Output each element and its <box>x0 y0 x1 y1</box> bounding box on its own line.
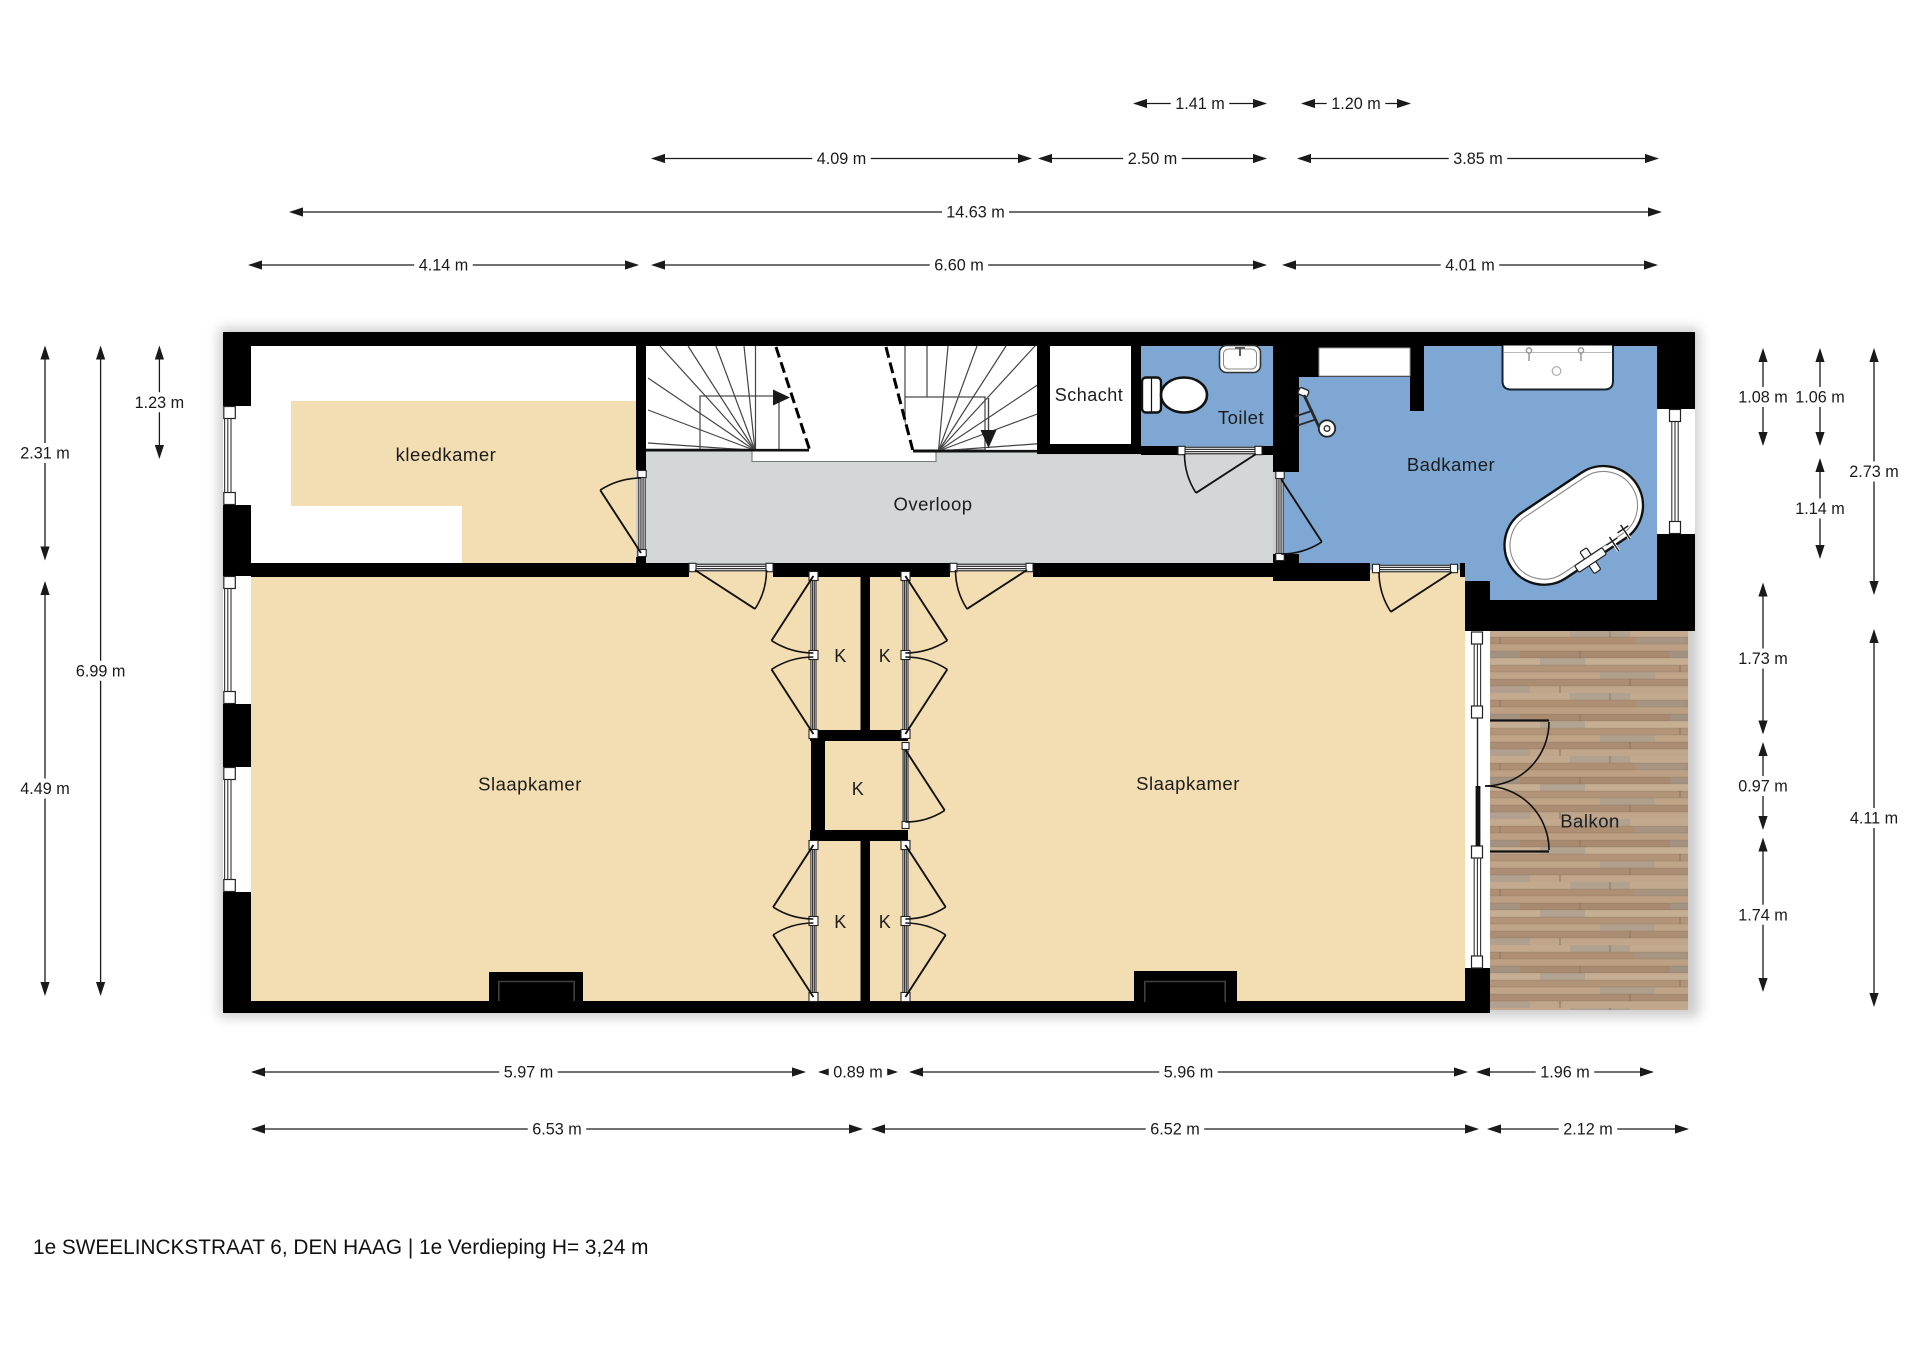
svg-text:6.99 m: 6.99 m <box>76 662 126 680</box>
svg-text:5.96 m: 5.96 m <box>1164 1064 1214 1082</box>
svg-text:Balkon: Balkon <box>1560 811 1620 832</box>
svg-text:K: K <box>834 912 847 932</box>
svg-text:2.50 m: 2.50 m <box>1128 150 1178 168</box>
svg-text:K: K <box>852 779 865 799</box>
svg-text:1.23 m: 1.23 m <box>135 394 185 412</box>
svg-text:6.60 m: 6.60 m <box>934 257 984 275</box>
svg-text:6.53 m: 6.53 m <box>532 1121 582 1139</box>
svg-text:6.52 m: 6.52 m <box>1150 1121 1200 1139</box>
svg-text:4.09 m: 4.09 m <box>817 150 867 168</box>
svg-text:Toilet: Toilet <box>1218 407 1264 428</box>
svg-text:K: K <box>834 646 847 666</box>
svg-text:1.73 m: 1.73 m <box>1738 650 1788 668</box>
svg-text:2.73 m: 2.73 m <box>1849 463 1899 481</box>
svg-text:1.96 m: 1.96 m <box>1540 1064 1590 1082</box>
svg-text:0.89 m: 0.89 m <box>833 1064 883 1082</box>
svg-text:3.85 m: 3.85 m <box>1453 150 1503 168</box>
svg-text:kleedkamer: kleedkamer <box>396 444 497 465</box>
svg-text:Slaapkamer: Slaapkamer <box>1136 773 1240 794</box>
svg-text:1.74 m: 1.74 m <box>1738 906 1788 924</box>
svg-text:K: K <box>879 912 892 932</box>
svg-text:5.97 m: 5.97 m <box>504 1064 554 1082</box>
svg-text:1.41 m: 1.41 m <box>1175 95 1225 113</box>
svg-text:14.63 m: 14.63 m <box>946 204 1005 222</box>
svg-text:1.08 m: 1.08 m <box>1738 389 1788 407</box>
svg-text:1.06 m: 1.06 m <box>1795 389 1845 407</box>
svg-text:4.11 m: 4.11 m <box>1850 810 1898 828</box>
svg-text:K: K <box>879 646 892 666</box>
svg-text:Badkamer: Badkamer <box>1407 454 1495 475</box>
svg-text:4.01 m: 4.01 m <box>1445 257 1495 275</box>
svg-text:1.14 m: 1.14 m <box>1795 500 1845 518</box>
svg-text:2.31 m: 2.31 m <box>20 445 70 463</box>
svg-text:2.12 m: 2.12 m <box>1563 1121 1613 1139</box>
svg-text:1e SWEELINCKSTRAAT 6, DEN HAAG: 1e SWEELINCKSTRAAT 6, DEN HAAG | 1e Verd… <box>33 1236 649 1259</box>
svg-text:Slaapkamer: Slaapkamer <box>478 774 582 795</box>
svg-text:1.20 m: 1.20 m <box>1331 95 1381 113</box>
svg-text:4.14 m: 4.14 m <box>419 257 469 275</box>
svg-text:4.49 m: 4.49 m <box>20 780 70 798</box>
svg-text:0.97 m: 0.97 m <box>1738 778 1788 796</box>
svg-text:Overloop: Overloop <box>893 494 972 515</box>
svg-text:Schacht: Schacht <box>1055 385 1124 405</box>
